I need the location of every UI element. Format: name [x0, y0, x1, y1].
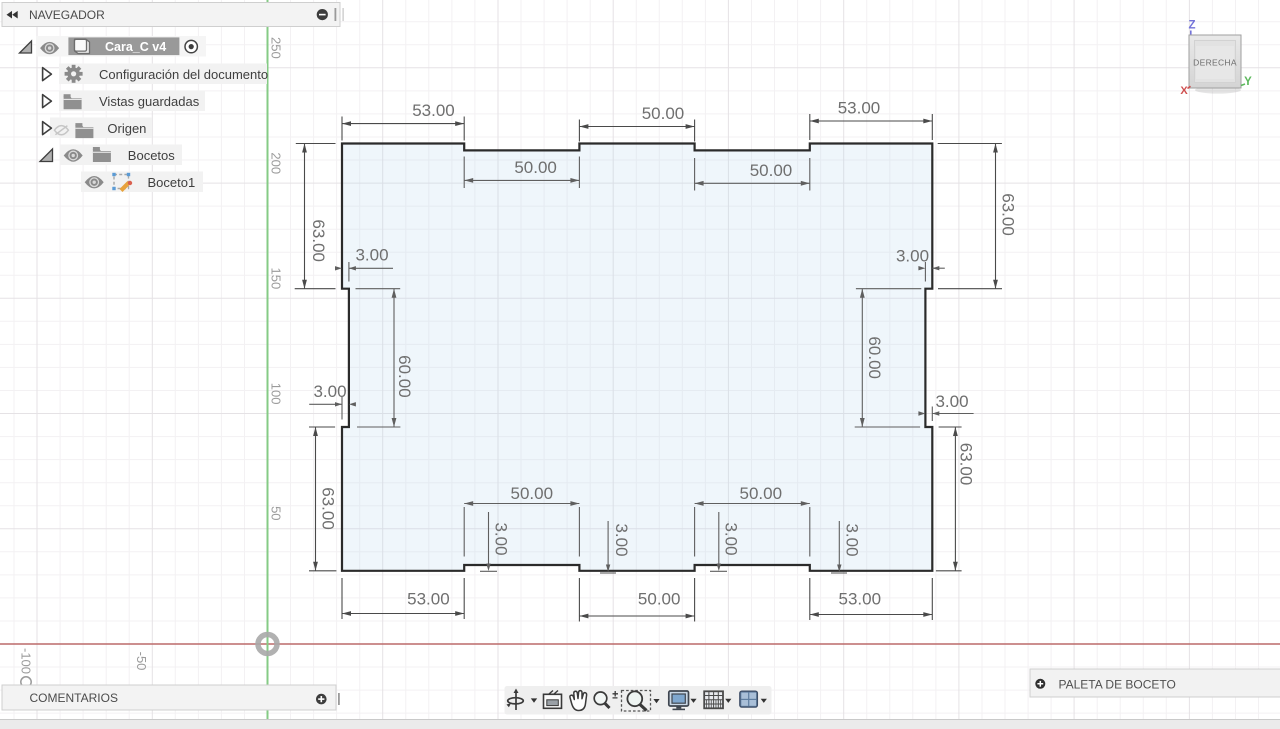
svg-text:Cara_C v4: Cara_C v4	[105, 40, 166, 54]
svg-text:DERECHA: DERECHA	[1193, 57, 1237, 67]
svg-text:50.00: 50.00	[511, 484, 554, 503]
svg-text:Configuración del documento: Configuración del documento	[99, 67, 268, 82]
svg-text:63.00: 63.00	[999, 193, 1018, 236]
svg-text:3.00: 3.00	[612, 523, 631, 556]
svg-text:250: 250	[269, 37, 284, 59]
svg-text:3.00: 3.00	[935, 392, 968, 411]
svg-text:150: 150	[269, 268, 284, 290]
svg-text:63.00: 63.00	[957, 443, 976, 486]
svg-text:60.00: 60.00	[395, 355, 414, 398]
svg-text:50.00: 50.00	[740, 484, 783, 503]
svg-text:3.00: 3.00	[313, 382, 346, 401]
svg-text:Boceto1: Boceto1	[148, 175, 196, 190]
svg-text:3.00: 3.00	[722, 522, 741, 555]
svg-text:Vistas guardadas: Vistas guardadas	[99, 94, 200, 109]
svg-text:53.00: 53.00	[838, 99, 881, 118]
svg-text:COMENTARIOS: COMENTARIOS	[30, 691, 118, 705]
svg-text:X: X	[1180, 85, 1188, 97]
svg-text:3.00: 3.00	[843, 523, 862, 556]
svg-text:50.00: 50.00	[514, 158, 557, 177]
svg-text:50.00: 50.00	[638, 590, 681, 609]
svg-text:3.00: 3.00	[492, 522, 511, 555]
svg-text:Origen: Origen	[107, 121, 146, 136]
svg-text:PALETA DE BOCETO: PALETA DE BOCETO	[1059, 678, 1176, 692]
svg-text:63.00: 63.00	[309, 219, 328, 262]
svg-text:50: 50	[269, 506, 284, 520]
svg-text:100: 100	[269, 383, 284, 405]
svg-text:3.00: 3.00	[896, 246, 929, 265]
svg-text:Z: Z	[1188, 20, 1195, 32]
svg-text:63.00: 63.00	[319, 487, 338, 530]
svg-text:50.00: 50.00	[642, 104, 685, 123]
svg-text:53.00: 53.00	[407, 590, 450, 609]
svg-text:Y: Y	[1244, 76, 1252, 88]
svg-text:60.00: 60.00	[865, 336, 884, 379]
svg-text:53.00: 53.00	[839, 590, 882, 609]
svg-text:NAVEGADOR: NAVEGADOR	[29, 8, 105, 22]
svg-text:50.00: 50.00	[750, 161, 793, 180]
svg-text:-50: -50	[134, 652, 149, 671]
svg-text:3.00: 3.00	[355, 246, 388, 265]
svg-text:53.00: 53.00	[412, 101, 455, 120]
svg-text:-100: -100	[19, 648, 34, 674]
svg-text:Bocetos: Bocetos	[128, 148, 175, 163]
svg-text:200: 200	[269, 152, 284, 174]
